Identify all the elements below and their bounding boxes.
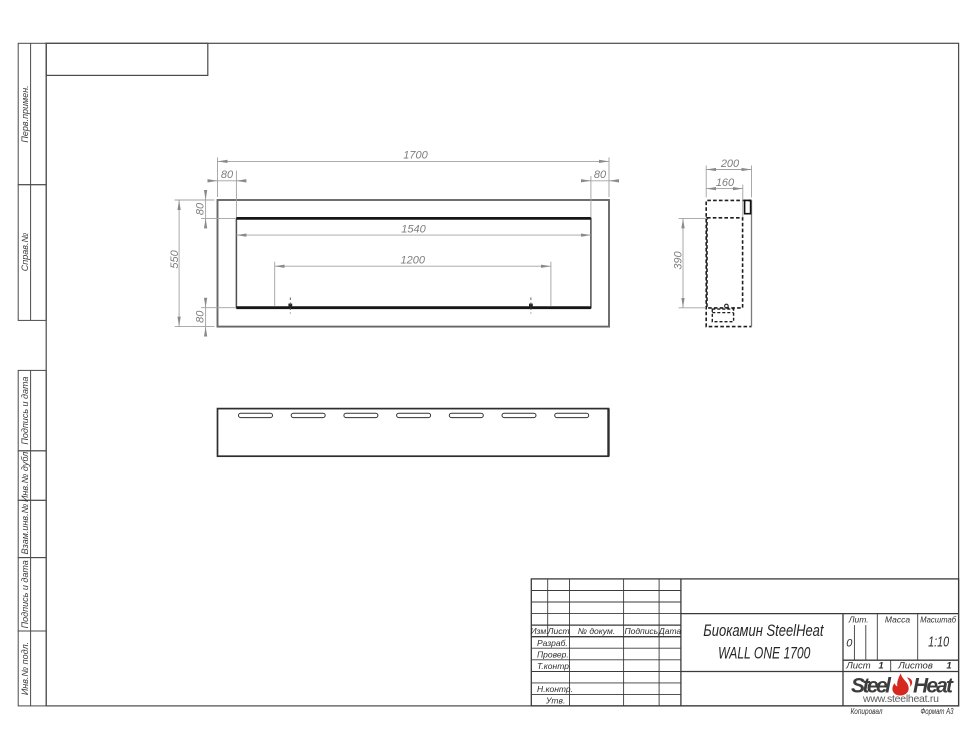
svg-text:Взам.инв.№: Взам.инв.№ bbox=[20, 503, 30, 554]
svg-text:Утв.: Утв. bbox=[545, 696, 565, 706]
svg-text:160: 160 bbox=[716, 177, 735, 189]
svg-text:Лист: Лист bbox=[845, 661, 871, 672]
svg-text:№ докум.: № докум. bbox=[578, 626, 615, 636]
svg-text:Лит.: Лит. bbox=[848, 615, 869, 625]
svg-text:Масштаб: Масштаб bbox=[920, 615, 957, 625]
svg-text:Провер.: Провер. bbox=[537, 649, 569, 659]
svg-text:1200: 1200 bbox=[401, 255, 426, 267]
svg-text:1700: 1700 bbox=[403, 150, 428, 162]
svg-text:80: 80 bbox=[194, 310, 206, 323]
svg-text:1540: 1540 bbox=[401, 223, 426, 235]
svg-text:1:10: 1:10 bbox=[928, 633, 950, 650]
svg-text:Лист: Лист bbox=[547, 626, 570, 636]
svg-text:Перв.примен.: Перв.примен. bbox=[20, 85, 30, 142]
svg-text:WALL ONE 1700: WALL ONE 1700 bbox=[718, 645, 810, 663]
svg-text:Подпись и дата: Подпись и дата bbox=[20, 377, 30, 445]
svg-text:200: 200 bbox=[720, 158, 740, 170]
svg-text:1: 1 bbox=[946, 661, 951, 672]
svg-text:Листов: Листов bbox=[897, 661, 933, 672]
svg-text:Формат А3: Формат А3 bbox=[921, 707, 955, 716]
svg-text:550: 550 bbox=[169, 249, 181, 268]
svg-text:Инв.№ дубл.: Инв.№ дубл. bbox=[20, 449, 30, 502]
svg-text:Дата: Дата bbox=[658, 626, 682, 636]
svg-text:0: 0 bbox=[846, 638, 853, 650]
svg-text:Изм.: Изм. bbox=[530, 626, 548, 636]
svg-text:Справ.№: Справ.№ bbox=[20, 233, 30, 272]
svg-text:Т.контр.: Т.контр. bbox=[537, 661, 571, 671]
svg-text:Н.контр.: Н.контр. bbox=[537, 684, 573, 694]
svg-text:Инв.№ подл.: Инв.№ подл. bbox=[20, 642, 30, 695]
svg-text:1: 1 bbox=[878, 661, 883, 672]
svg-text:80: 80 bbox=[221, 169, 234, 181]
svg-text:Подпись и дата: Подпись и дата bbox=[20, 560, 30, 628]
svg-text:Копировал: Копировал bbox=[851, 707, 883, 716]
svg-text:80: 80 bbox=[594, 169, 607, 181]
svg-text:Разраб.: Разраб. bbox=[537, 638, 568, 648]
svg-text:Биокамин SteelHeat: Биокамин SteelHeat bbox=[703, 623, 824, 641]
svg-text:80: 80 bbox=[194, 202, 206, 215]
svg-text:390: 390 bbox=[673, 250, 685, 269]
svg-text:Подпись: Подпись bbox=[624, 626, 658, 636]
svg-text:Масса: Масса bbox=[885, 615, 910, 625]
